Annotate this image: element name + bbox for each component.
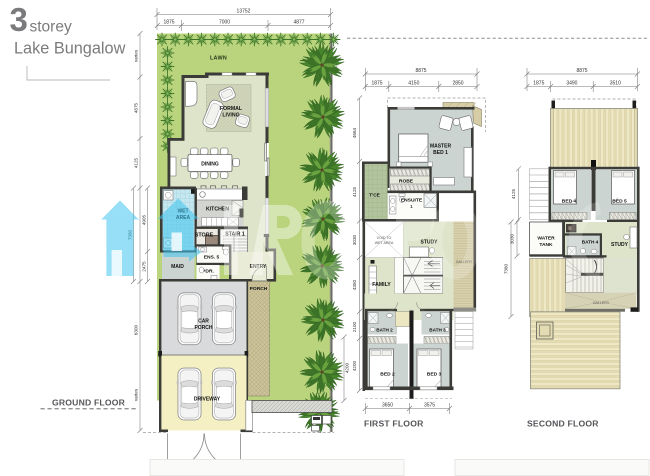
svg-text:1875: 1875 bbox=[533, 81, 544, 87]
svg-text:3575: 3575 bbox=[424, 403, 435, 409]
svg-text:STORE: STORE bbox=[195, 233, 214, 239]
svg-text:6300: 6300 bbox=[134, 324, 139, 335]
svg-text:4905: 4905 bbox=[142, 214, 147, 225]
svg-text:VOID TO: VOID TO bbox=[377, 236, 392, 240]
svg-text:MAID: MAID bbox=[171, 264, 184, 270]
svg-text:1875: 1875 bbox=[371, 81, 382, 87]
svg-text:4200: 4200 bbox=[352, 360, 357, 371]
svg-text:4664: 4664 bbox=[352, 127, 357, 138]
svg-text:FAMILY: FAMILY bbox=[372, 282, 391, 288]
svg-text:ENS. 5: ENS. 5 bbox=[204, 255, 220, 261]
svg-text:4350: 4350 bbox=[352, 279, 357, 290]
svg-text:2100: 2100 bbox=[352, 321, 357, 332]
svg-text:4125: 4125 bbox=[134, 157, 139, 168]
svg-text:4875: 4875 bbox=[134, 102, 139, 113]
svg-text:3510: 3510 bbox=[610, 81, 621, 87]
svg-text:BED 3: BED 3 bbox=[427, 372, 442, 378]
svg-text:WATER: WATER bbox=[537, 236, 555, 242]
svg-text:7380: 7380 bbox=[504, 263, 509, 274]
svg-text:3030: 3030 bbox=[352, 234, 357, 245]
svg-text:LIVING: LIVING bbox=[222, 113, 239, 119]
svg-text:GALLERY: GALLERY bbox=[593, 301, 610, 305]
svg-text:4877: 4877 bbox=[293, 20, 304, 26]
svg-text:ROBE: ROBE bbox=[399, 179, 414, 185]
svg-text:T'CE: T'CE bbox=[369, 193, 381, 199]
svg-text:storey: storey bbox=[30, 19, 72, 36]
svg-text:3: 3 bbox=[10, 1, 28, 38]
svg-text:ENSUITE: ENSUITE bbox=[401, 198, 423, 204]
svg-text:BATH 2: BATH 2 bbox=[376, 328, 393, 333]
svg-text:BED 4: BED 4 bbox=[562, 199, 577, 205]
svg-text:TANK: TANK bbox=[539, 242, 553, 248]
svg-text:4125: 4125 bbox=[511, 188, 516, 199]
svg-text:2475: 2475 bbox=[142, 261, 147, 272]
svg-text:STUDY: STUDY bbox=[611, 242, 629, 248]
svg-text:BED 2: BED 2 bbox=[380, 372, 395, 378]
svg-text:CAR: CAR bbox=[198, 319, 209, 325]
svg-text:PORCH: PORCH bbox=[194, 325, 212, 331]
svg-text:2850: 2850 bbox=[452, 81, 463, 87]
svg-text:LAWN: LAWN bbox=[210, 56, 227, 62]
svg-text:varies: varies bbox=[134, 49, 139, 62]
svg-text:WET AREA: WET AREA bbox=[375, 241, 394, 245]
svg-text:3490: 3490 bbox=[566, 81, 577, 87]
svg-text:1875: 1875 bbox=[163, 20, 174, 26]
svg-text:3030: 3030 bbox=[510, 233, 515, 244]
svg-text:FORMAL: FORMAL bbox=[220, 106, 243, 112]
svg-text:Lake Bungalow: Lake Bungalow bbox=[14, 40, 126, 58]
svg-text:DINING: DINING bbox=[201, 162, 219, 168]
svg-text:PORCH: PORCH bbox=[250, 286, 268, 292]
svg-text:13752: 13752 bbox=[237, 9, 251, 15]
svg-text:FIRST FLOOR: FIRST FLOOR bbox=[364, 419, 424, 429]
svg-text:8875: 8875 bbox=[576, 68, 587, 74]
svg-text:DRIVEWAY: DRIVEWAY bbox=[194, 397, 221, 403]
svg-text:MASTER: MASTER bbox=[430, 144, 452, 150]
svg-text:7000: 7000 bbox=[219, 20, 230, 26]
svg-text:BED 1: BED 1 bbox=[433, 150, 448, 156]
svg-text:3650: 3650 bbox=[382, 403, 393, 409]
svg-text:BED 5: BED 5 bbox=[612, 199, 627, 205]
svg-text:4125: 4125 bbox=[352, 186, 357, 197]
svg-text:GROUND FLOOR: GROUND FLOOR bbox=[52, 398, 126, 408]
svg-text:BATH 4: BATH 4 bbox=[582, 240, 599, 245]
svg-text:varies: varies bbox=[134, 388, 139, 401]
svg-text:8875: 8875 bbox=[415, 68, 426, 74]
svg-text:4200: 4200 bbox=[345, 362, 350, 373]
svg-text:4150: 4150 bbox=[408, 81, 419, 87]
svg-text:SECOND FLOOR: SECOND FLOOR bbox=[527, 419, 599, 429]
svg-text:BATH 3: BATH 3 bbox=[429, 328, 446, 333]
